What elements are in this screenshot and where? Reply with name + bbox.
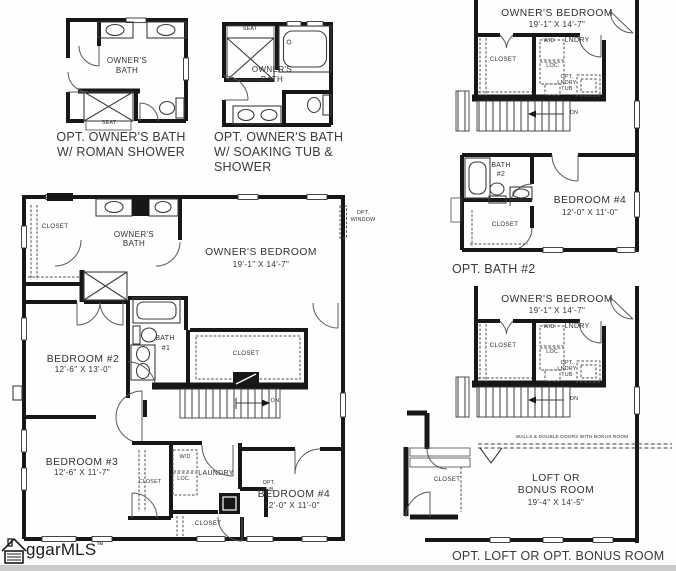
dim-label-owners-bedroom: 19'-1" X 14'-7" (529, 307, 586, 315)
opt-tub-icon (219, 493, 240, 514)
room-label-bedroom4: BEDROOM #4 (554, 196, 627, 206)
mls-watermark: ggarMLS™ (26, 540, 104, 560)
room-label-bath1-2: #1 (162, 345, 170, 352)
double-sink-icon (233, 106, 281, 124)
double-sink-icon (96, 197, 178, 216)
room-label-loft-2: BONUS ROOM (518, 486, 595, 496)
room-label-closet: CLOSET (139, 480, 162, 485)
room-label-owners: OWNER'S (107, 57, 147, 65)
caption-opt-loft: OPT. LOFT OR OPT. BONUS ROOM (452, 550, 664, 563)
room-label-closet: CLOSET (490, 57, 517, 63)
bonus-room-wall-note: WALLS & DOUBLE DOORS WITH BONUS ROOM (516, 436, 628, 441)
wd-label: W/D (179, 455, 190, 460)
room-label-owners: OWNER'S (252, 66, 292, 74)
room-label-loft-1: LOFT OR (532, 474, 580, 484)
caption-soaking-tub-1: OPT. OWNER'S BATH (214, 131, 343, 144)
room-label-owners-bedroom: OWNER'S BEDROOM (501, 295, 613, 305)
room-label-bath: BATH (123, 240, 145, 248)
dim-label-owners-bedroom: 19'-1" X 14'-7" (529, 21, 586, 29)
trademark-symbol: ™ (96, 542, 103, 549)
room-label-closet: CLOSET (195, 521, 222, 527)
wd-label: W/D (543, 39, 554, 44)
room-label-closet: CLOSET (490, 343, 517, 349)
toilet-icon (133, 326, 157, 344)
room-label-bath: BATH (261, 76, 283, 84)
stairs-dn-label: DN (570, 111, 578, 116)
caption-soaking-tub-3: SHOWER (214, 161, 271, 174)
stairs-dn-label: DN (570, 397, 578, 402)
caption-opt-bath2: OPT. BATH #2 (452, 263, 535, 276)
room-label-lndry: LNDRY (564, 37, 589, 44)
room-label-closet: CLOSET (233, 351, 260, 357)
mls-watermark-text: ggarMLS (26, 540, 96, 559)
room-label-bath1-1: BATH (155, 335, 174, 342)
window-bottom-edge (0, 565, 676, 571)
shower-icon (84, 272, 127, 300)
bathtub-icon (465, 158, 490, 198)
caption-roman-shower-2: W/ ROMAN SHOWER (57, 146, 185, 159)
dim-label-bedroom3: 12'-6" X 11'-7" (54, 469, 110, 477)
room-label-bath2-1: BATH (491, 162, 510, 169)
caption-roman-shower-1: OPT. OWNER'S BATH (56, 131, 185, 144)
toilet-icon (308, 95, 332, 115)
fireplace-icon (13, 386, 22, 400)
bathtub-icon (133, 298, 180, 323)
room-label-closet: CLOSET (434, 477, 461, 483)
caption-soaking-tub-2: W/ SOAKING TUB & (214, 146, 333, 159)
floorplan-sheet: SEAT OWNER'S BATH OPT. OWNER'S BATH W/ R… (0, 0, 676, 571)
room-label-laundry: LAUNDRY (198, 470, 233, 477)
room-label-owners-bedroom: OWNER'S BEDROOM (501, 9, 613, 19)
opt-window-label-1: OPT. (357, 211, 370, 216)
opt-tub-label-1: OPT. (263, 481, 276, 486)
stairs-icon (477, 387, 570, 417)
opt-lndry-tub-label-3: TUB (561, 373, 572, 378)
opt-lndry-tub-label-3: TUB (561, 87, 572, 92)
dim-label-bedroom4: 12'-0" X 11'-0" (264, 502, 320, 510)
room-label-bedroom2: BEDROOM #2 (47, 355, 120, 365)
room-label-bath2-2: #2 (497, 171, 505, 178)
stairs-dn-label: DN (271, 399, 279, 404)
wd-label: W/D (543, 325, 554, 330)
room-label-closet: CLOSET (492, 222, 519, 228)
room-label-bedroom3: BEDROOM #3 (46, 458, 119, 468)
room-label-closet: CLOSET (42, 224, 69, 230)
room-label-bedroom4: BEDROOM #4 (258, 490, 331, 500)
double-sink-icon (98, 22, 186, 38)
opt-laundry-tub-icon (577, 75, 600, 96)
loc-label: LOC. (546, 64, 559, 69)
mls-logo-house-icon (2, 539, 26, 563)
room-label-owners-bedroom: OWNER'S BEDROOM (205, 248, 317, 258)
room-label-lndry: LNDRY (564, 323, 589, 330)
toilet-icon (160, 98, 185, 118)
loc-label: LOC. (177, 477, 190, 482)
stairs-icon (477, 101, 570, 131)
opt-laundry-tub-icon (577, 361, 600, 382)
opt-window-label-2: WINDOW (351, 218, 376, 223)
room-label-owners: OWNER'S (114, 231, 154, 239)
dim-label-loft: 19'-4" X 14'-5" (528, 499, 585, 507)
dim-label-bedroom2: 12'-6" X 13'-0" (55, 366, 112, 374)
room-label-bath: BATH (116, 67, 138, 75)
loc-label: LOC. (546, 350, 559, 355)
seat-label: SEAT (243, 27, 257, 32)
seat-label: SEAT (102, 121, 116, 126)
dim-label-bedroom4: 12'-0" X 11'-0" (562, 209, 618, 217)
dim-label-owners-bedroom: 19'-1" X 14'-7" (233, 261, 290, 269)
